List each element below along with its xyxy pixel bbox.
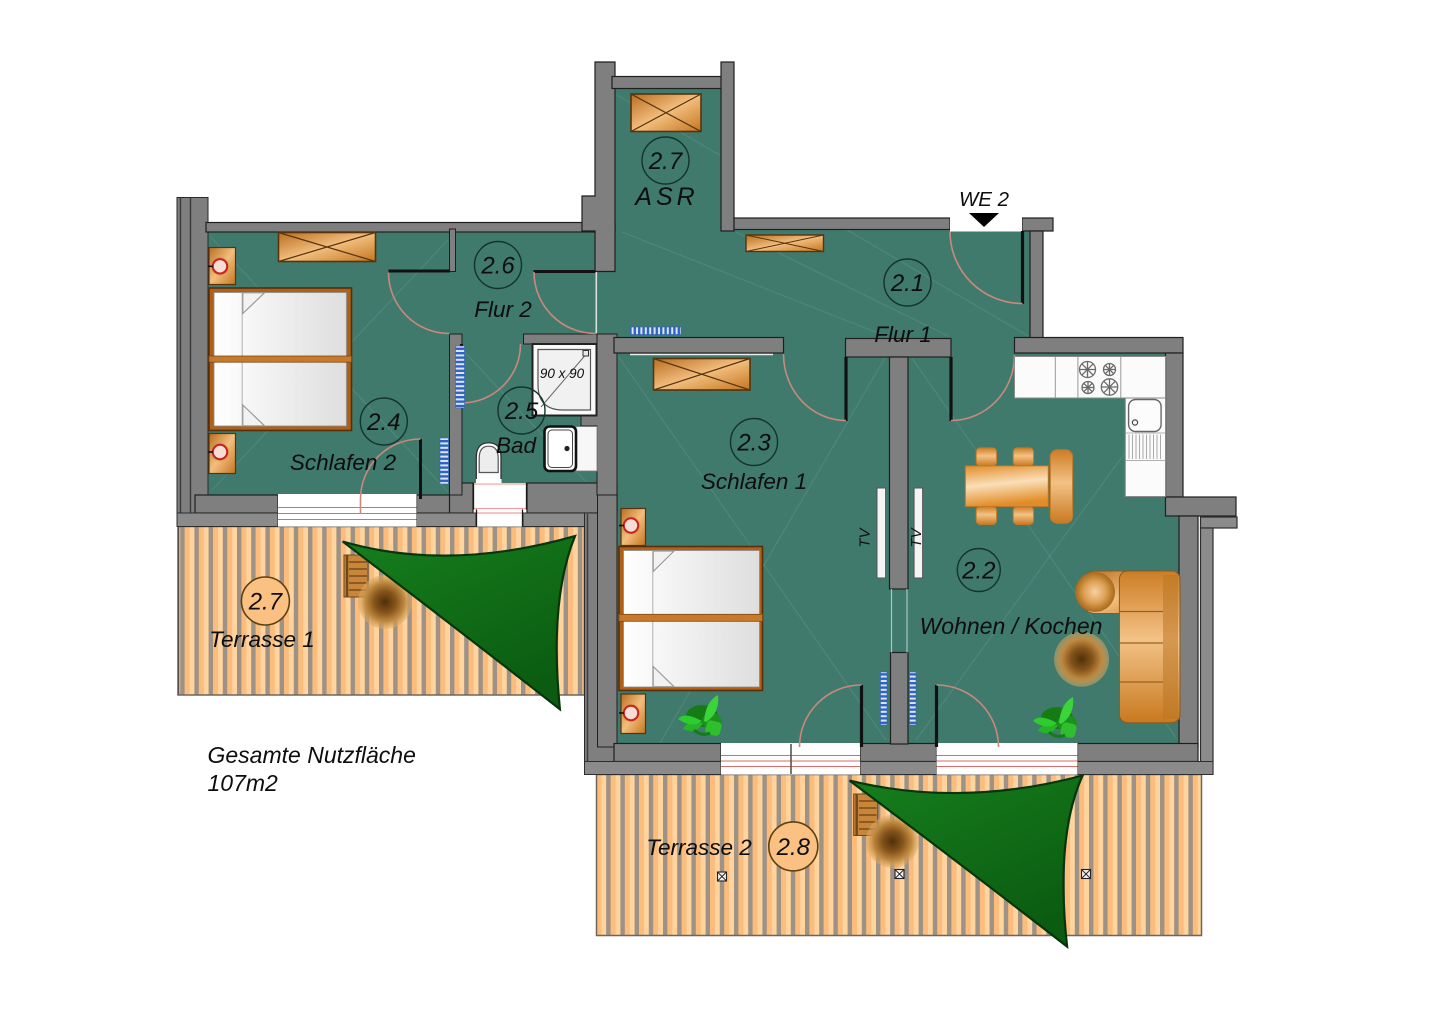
svg-text:TV: TV	[857, 526, 874, 547]
svg-text:2.3: 2.3	[736, 430, 771, 457]
svg-text:WE 2: WE 2	[959, 188, 1010, 211]
svg-text:ASR: ASR	[633, 183, 698, 211]
svg-text:TV: TV	[908, 526, 925, 547]
svg-text:Flur 2: Flur 2	[474, 297, 532, 322]
svg-text:2.4: 2.4	[366, 409, 400, 436]
svg-text:Terrasse 2: Terrasse 2	[646, 835, 752, 860]
svg-text:Gesamte Nutzfläche: Gesamte Nutzfläche	[208, 742, 416, 768]
svg-text:2.1: 2.1	[890, 270, 924, 297]
svg-text:107m2: 107m2	[208, 770, 279, 796]
svg-text:Wohnen / Kochen: Wohnen / Kochen	[920, 613, 1103, 639]
svg-text:90 x 90: 90 x 90	[540, 366, 585, 381]
svg-text:Schlafen 2: Schlafen 2	[290, 450, 397, 475]
svg-text:Schlafen 1: Schlafen 1	[701, 469, 807, 494]
svg-text:Terrasse 1: Terrasse 1	[209, 627, 314, 652]
svg-text:2.2: 2.2	[961, 558, 995, 585]
svg-text:2.8: 2.8	[776, 834, 811, 861]
svg-text:2.7: 2.7	[248, 589, 284, 616]
svg-text:2.6: 2.6	[480, 253, 515, 280]
svg-text:Flur 1: Flur 1	[874, 322, 932, 347]
svg-text:2.7: 2.7	[648, 148, 684, 175]
svg-text:Bad: Bad	[496, 433, 538, 458]
svg-text:2.5: 2.5	[504, 398, 539, 425]
